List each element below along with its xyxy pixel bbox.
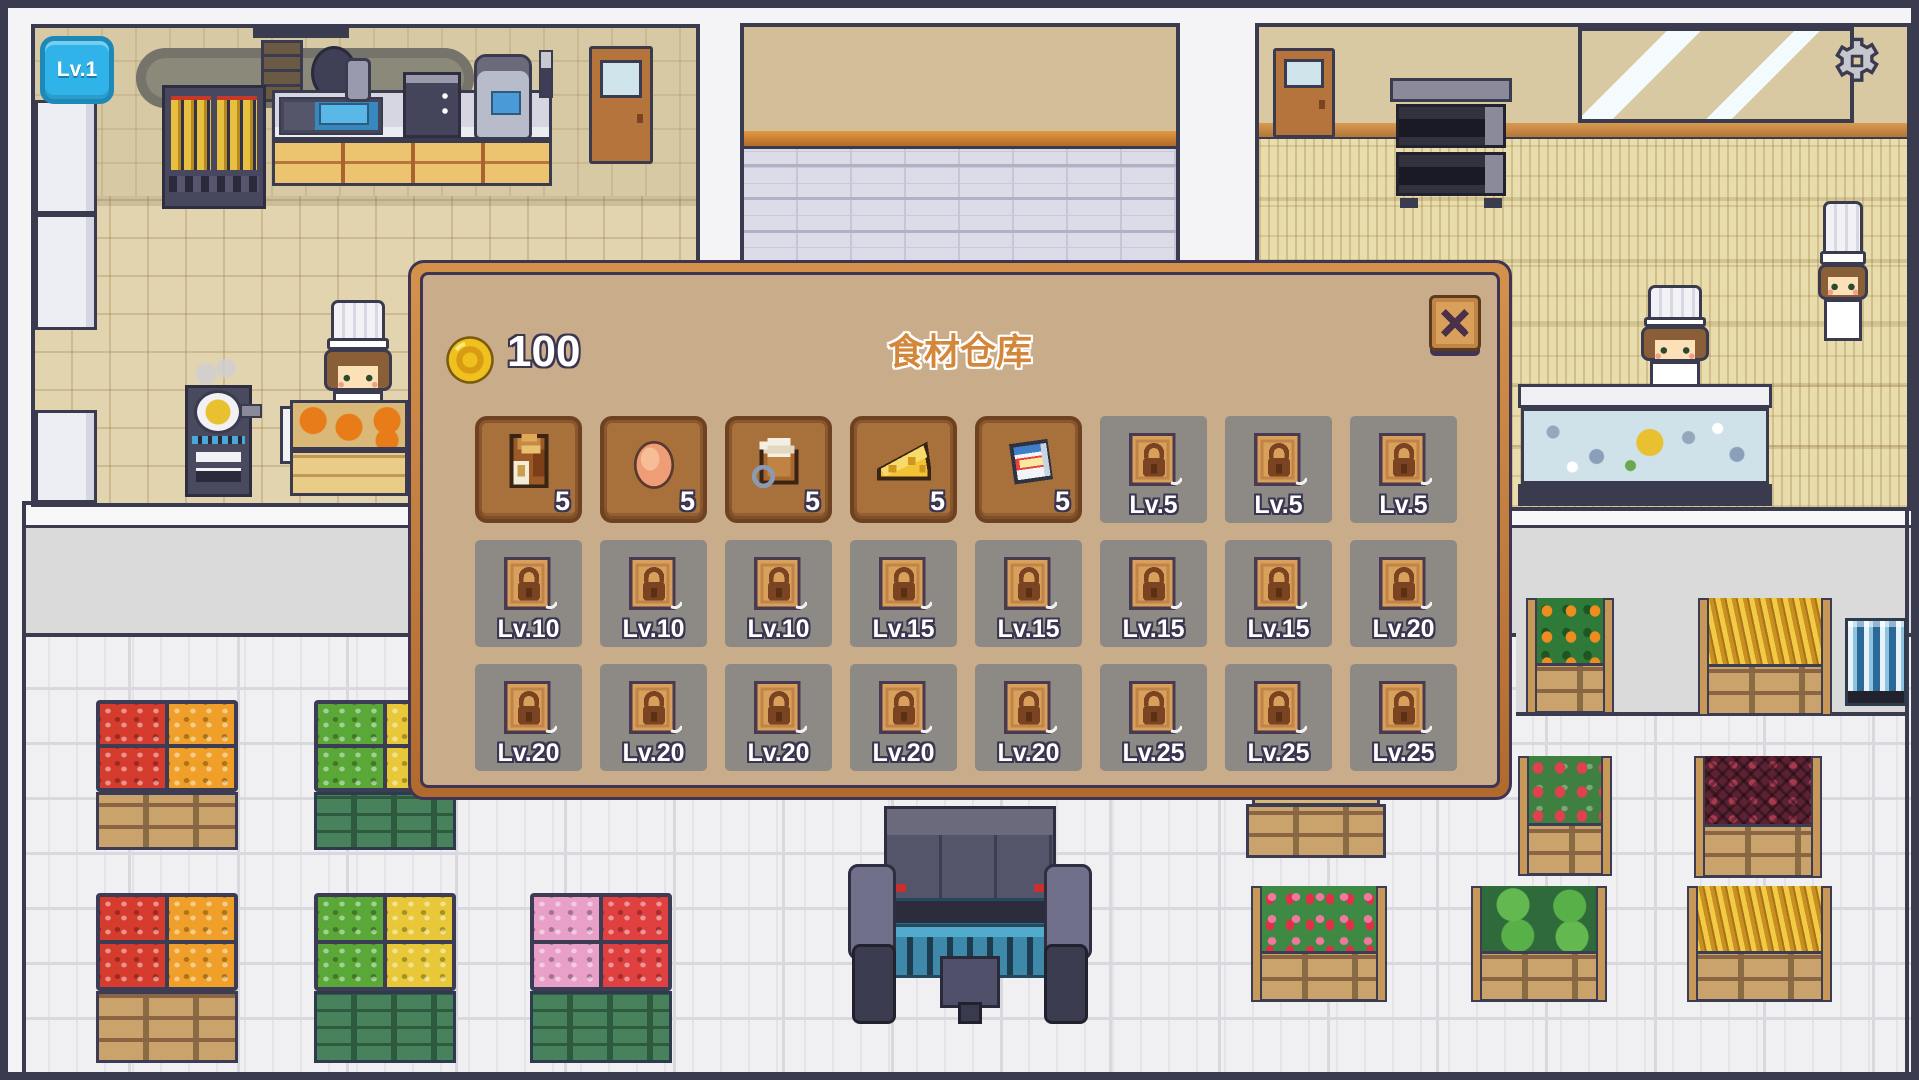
counter-lamp — [539, 50, 553, 98]
slot-level-label: Lv.10 — [725, 615, 832, 644]
cheese-icon — [873, 430, 935, 492]
produce-stand-green-pear — [314, 893, 456, 1063]
produce-stand-tomato-orange — [96, 700, 238, 850]
ingredient-warehouse-modal: 食材仓库 100 55555Lv.5Lv.5Lv.5Lv.10Lv.10Lv.1… — [408, 260, 1512, 800]
delivery-truck — [848, 806, 1092, 1028]
slot-level-label: Lv.15 — [850, 615, 957, 644]
slot-level-label: Lv.10 — [600, 615, 707, 644]
big-window — [1578, 27, 1854, 123]
slot-20-locked[interactable]: Lv.20 — [850, 664, 957, 771]
padlock-icon — [626, 554, 682, 616]
coin-icon — [445, 335, 495, 385]
crate-corn — [1687, 886, 1832, 1002]
slot-8-locked[interactable]: Lv.5 — [1350, 416, 1457, 523]
middle-room-baseboard — [744, 131, 1176, 149]
slot-12-locked[interactable]: Lv.15 — [850, 540, 957, 647]
slot-level-label: Lv.20 — [1350, 615, 1457, 644]
settings-gear-icon[interactable] — [1833, 37, 1881, 87]
padlock-icon — [876, 554, 932, 616]
level-badge[interactable]: Lv.1 — [40, 36, 114, 104]
slot-level-label: Lv.15 — [1100, 615, 1207, 644]
egg-icon — [623, 430, 685, 492]
slot-4-unlocked[interactable]: 5 — [850, 416, 957, 523]
slot-17-locked[interactable]: Lv.20 — [475, 664, 582, 771]
slot-level-label: Lv.10 — [475, 615, 582, 644]
padlock-icon — [1376, 554, 1432, 616]
middle-room-tiles — [744, 149, 1176, 263]
fridge-middle — [35, 214, 97, 330]
slot-3-unlocked[interactable]: 5 — [725, 416, 832, 523]
slot-level-label: Lv.20 — [600, 739, 707, 768]
slot-15-locked[interactable]: Lv.15 — [1225, 540, 1332, 647]
slot-level-label: Lv.20 — [850, 739, 957, 768]
crate-dark-berries — [1694, 756, 1822, 878]
fridge-bottom — [35, 410, 97, 503]
slot-1-unlocked[interactable]: 5 — [475, 416, 582, 523]
slot-21-locked[interactable]: Lv.20 — [975, 664, 1082, 771]
slot-level-label: Lv.25 — [1100, 739, 1207, 768]
padlock-icon — [1376, 678, 1432, 740]
padlock-icon — [1001, 678, 1057, 740]
fridge-top — [35, 100, 97, 214]
slot-22-locked[interactable]: Lv.25 — [1100, 664, 1207, 771]
slot-16-locked[interactable]: Lv.20 — [1350, 540, 1457, 647]
flour-bag-icon — [498, 430, 560, 492]
padlock-icon — [501, 678, 557, 740]
padlock-icon — [1001, 554, 1057, 616]
fish-display-case — [1518, 384, 1772, 508]
padlock-icon — [626, 678, 682, 740]
slot-item-count: 5 — [555, 486, 570, 517]
slot-level-label: Lv.20 — [475, 739, 582, 768]
crate-wheat — [1698, 598, 1832, 716]
wood-cabinets — [272, 140, 552, 186]
faucet — [345, 58, 371, 102]
slot-level-label: Lv.5 — [1225, 491, 1332, 520]
slot-7-locked[interactable]: Lv.5 — [1225, 416, 1332, 523]
produce-stand-flower-strawberry — [530, 893, 672, 1063]
slot-19-locked[interactable]: Lv.20 — [725, 664, 832, 771]
crate-watermelons — [1471, 886, 1607, 1002]
hanging-rack — [253, 28, 349, 38]
padlock-icon — [501, 554, 557, 616]
slot-item-count: 5 — [930, 486, 945, 517]
slot-level-label: Lv.25 — [1225, 739, 1332, 768]
padlock-icon — [751, 678, 807, 740]
right-room-door — [1273, 48, 1335, 138]
crate-strawberries — [1251, 886, 1387, 1002]
steam — [193, 358, 237, 384]
crate-radishes — [1518, 756, 1612, 876]
slot-13-locked[interactable]: Lv.15 — [975, 540, 1082, 647]
padlock-icon — [1126, 554, 1182, 616]
milk-carton-icon — [998, 430, 1060, 492]
slot-level-label: Lv.5 — [1350, 491, 1457, 520]
slot-9-locked[interactable]: Lv.10 — [475, 540, 582, 647]
bottle-rack — [1845, 618, 1907, 706]
room-middle — [740, 23, 1180, 267]
slot-23-locked[interactable]: Lv.25 — [1225, 664, 1332, 771]
padlock-icon — [751, 554, 807, 616]
game-screen: Lv.1 食材仓库 100 55555Lv.5Lv.5Lv.5Lv.10Lv.1… — [0, 0, 1919, 1080]
cream-bag-icon — [748, 430, 810, 492]
slot-level-label: Lv.20 — [975, 739, 1082, 768]
padlock-icon — [1126, 430, 1182, 492]
stove — [185, 385, 252, 497]
modal-panel: 食材仓库 100 55555Lv.5Lv.5Lv.5Lv.10Lv.10Lv.1… — [420, 272, 1500, 788]
slot-level-label: Lv.20 — [725, 739, 832, 768]
double-oven — [1390, 78, 1512, 208]
chef-right — [1817, 201, 1869, 341]
chef-middle — [1640, 285, 1710, 391]
rice-cooker — [474, 54, 532, 140]
skewer-grill — [162, 85, 266, 209]
padlock-icon — [1251, 678, 1307, 740]
slot-14-locked[interactable]: Lv.15 — [1100, 540, 1207, 647]
slot-10-locked[interactable]: Lv.10 — [600, 540, 707, 647]
padlock-icon — [1126, 678, 1182, 740]
produce-stand-tomato-orange-2 — [96, 893, 238, 1063]
slot-24-locked[interactable]: Lv.25 — [1350, 664, 1457, 771]
crate-carrots — [1526, 598, 1614, 714]
padlock-icon — [1376, 430, 1432, 492]
close-button[interactable] — [1429, 295, 1481, 351]
slot-grid: 55555Lv.5Lv.5Lv.5Lv.10Lv.10Lv.10Lv.15Lv.… — [475, 416, 1457, 771]
slot-item-count: 5 — [680, 486, 695, 517]
right-room-baseboard — [1259, 123, 1907, 139]
slot-18-locked[interactable]: Lv.20 — [600, 664, 707, 771]
padlock-icon — [1251, 430, 1307, 492]
padlock-icon — [1251, 554, 1307, 616]
slot-6-locked[interactable]: Lv.5 — [1100, 416, 1207, 523]
left-room-door — [589, 46, 653, 164]
close-x-icon — [1440, 326, 1470, 341]
modal-title: 食材仓库 — [423, 323, 1497, 375]
orange-display-counter — [280, 386, 408, 498]
padlock-icon — [876, 678, 932, 740]
slot-level-label: Lv.5 — [1100, 491, 1207, 520]
slot-item-count: 5 — [1055, 486, 1070, 517]
coffee-machine — [403, 72, 461, 138]
slot-level-label: Lv.25 — [1350, 739, 1457, 768]
slot-level-label: Lv.15 — [1225, 615, 1332, 644]
level-badge-label: Lv.1 — [57, 58, 97, 82]
slot-11-locked[interactable]: Lv.10 — [725, 540, 832, 647]
middle-room-wall — [744, 27, 1176, 131]
market-right-line — [1905, 501, 1909, 1072]
slot-5-unlocked[interactable]: 5 — [975, 416, 1082, 523]
slot-level-label: Lv.15 — [975, 615, 1082, 644]
slot-item-count: 5 — [805, 486, 820, 517]
market-left-line — [22, 501, 26, 1072]
slot-2-unlocked[interactable]: 5 — [600, 416, 707, 523]
coin-count: 100 — [507, 327, 580, 377]
